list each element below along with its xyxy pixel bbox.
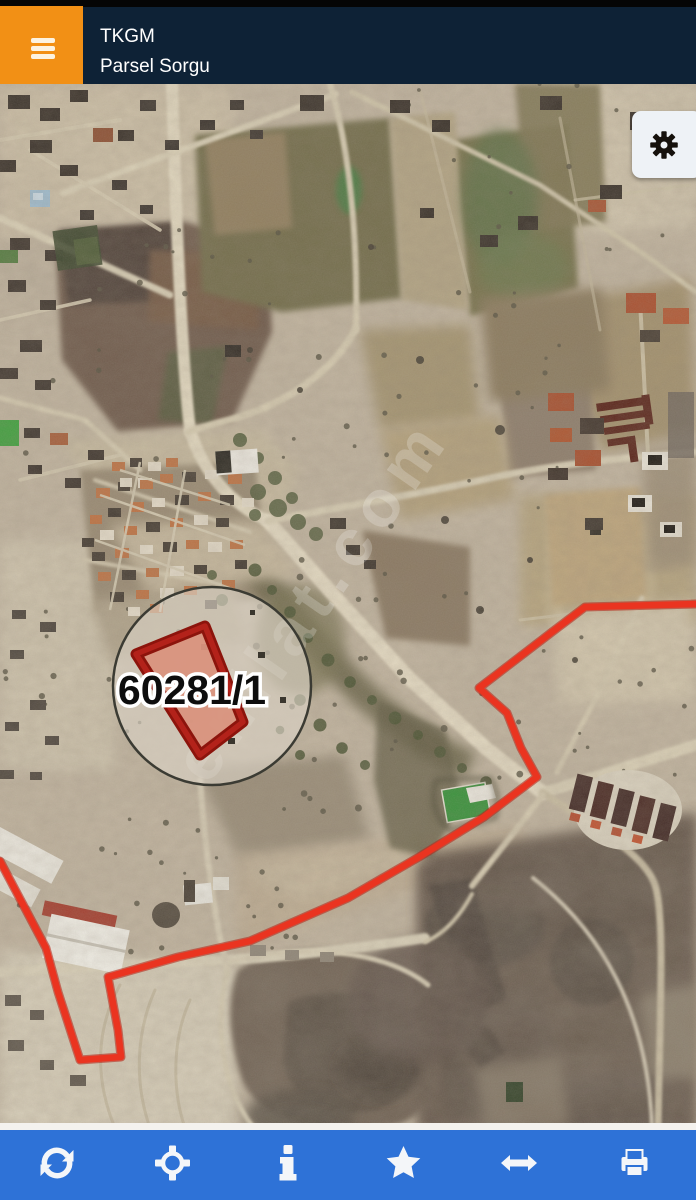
svg-text:60281/1: 60281/1 <box>118 667 266 713</box>
